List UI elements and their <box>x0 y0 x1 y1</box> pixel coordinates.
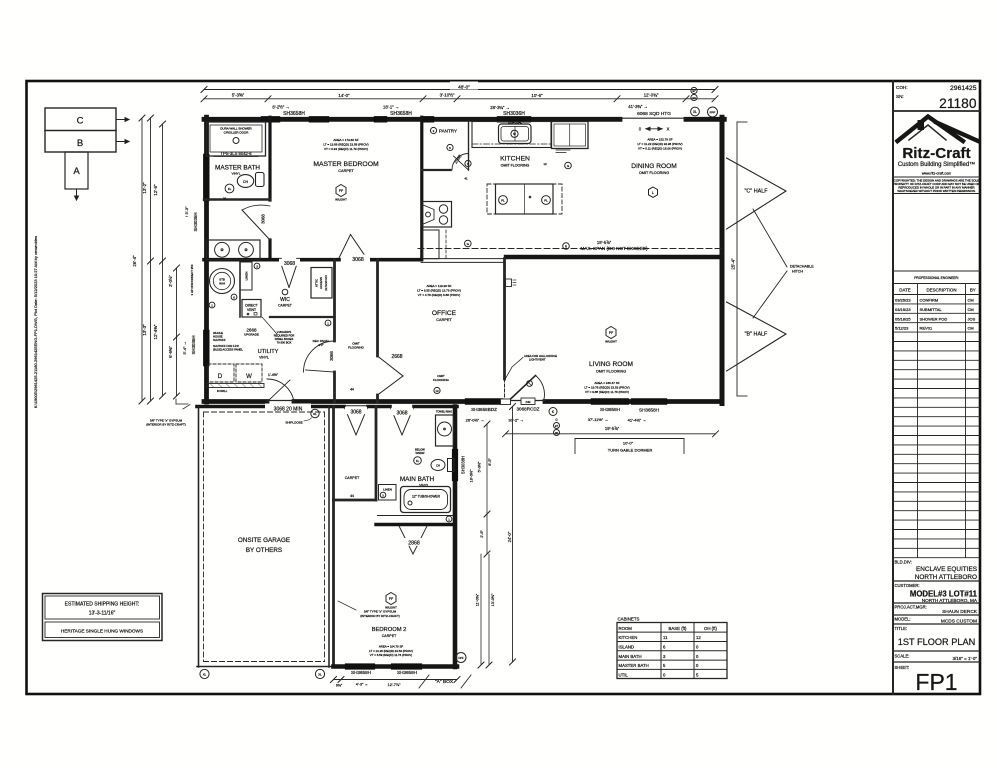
svg-text:1ST FLOOR PLAN: 1ST FLOOR PLAN <box>898 637 975 647</box>
svg-text:HOUSE: HOUSE <box>213 335 223 339</box>
svg-text:DM: DM <box>526 400 531 404</box>
svg-text:W/LIGHT: W/LIGHT <box>335 198 347 202</box>
svg-text:W/LIGHT: W/LIGHT <box>605 340 617 344</box>
svg-text:CARPET: CARPET <box>436 318 452 322</box>
svg-text:SH3658BDZ: SH3658BDZ <box>471 407 497 412</box>
svg-text:10'-6": 10'-6" <box>531 93 543 98</box>
svg-text:41'-4½" →: 41'-4½" → <box>628 418 647 423</box>
svg-text:PF: PF <box>339 189 343 193</box>
svg-text:37'-11½" →: 37'-11½" → <box>588 417 609 422</box>
svg-text:CONFIRM: CONFIRM <box>920 298 939 303</box>
svg-text:MODEL:: MODEL: <box>895 616 911 621</box>
svg-text:SUBMITTAL: SUBMITTAL <box>920 307 943 312</box>
svg-text:Custom Building Simplified™: Custom Building Simplified™ <box>898 161 975 168</box>
svg-text:L: L <box>652 191 654 195</box>
svg-text:SHAUN DERCK: SHAUN DERCK <box>942 609 978 615</box>
svg-text:41'-3¾" →: 41'-3¾" → <box>628 104 648 109</box>
svg-text:COH:: COH: <box>896 85 907 90</box>
svg-text:(INTERIOR BY RITZ-CRAFT): (INTERIOR BY RITZ-CRAFT) <box>360 614 400 618</box>
svg-text:AREA = 152.79 SF: AREA = 152.79 SF <box>647 138 672 142</box>
svg-text:FPF: FPF <box>458 656 464 660</box>
svg-text:14'-0": 14'-0" <box>338 93 350 98</box>
svg-text:ENCLAVE EQUITIES: ENCLAVE EQUITIES <box>916 566 977 573</box>
svg-text:FL: FL <box>228 187 232 191</box>
svg-text:K:\19005\2961425-21180-2961425: K:\19005\2961425-21180-2961425ENG-FP1.DW… <box>33 236 38 408</box>
svg-text:PROJ.ACT.MGR:: PROJ.ACT.MGR: <box>895 605 927 610</box>
svg-text:C: C <box>77 116 84 127</box>
svg-text:WHATSOEVER WITHOUT PRIOR WRITT: WHATSOEVER WITHOUT PRIOR WRITTEN PERMISS… <box>897 189 975 193</box>
svg-text:SH3658H: SH3658H <box>397 670 417 675</box>
svg-text:SHEET:: SHEET: <box>895 665 910 670</box>
svg-text:SHUTOFF: SHUTOFF <box>213 338 226 342</box>
svg-text:VT = 6.94 (REQD) 11.79 (PROV): VT = 6.94 (REQD) 11.79 (PROV) <box>324 147 368 151</box>
svg-text:PF: PF <box>609 331 613 335</box>
svg-text:VT = 4.78 (REQD) 6.88 (PROV): VT = 4.78 (REQD) 6.88 (PROV) <box>418 293 461 297</box>
svg-text:A: A <box>73 166 80 177</box>
svg-text:CARPET: CARPET <box>382 634 397 638</box>
svg-text:D: D <box>218 374 223 380</box>
svg-text:SH3658H: SH3658H <box>600 407 620 412</box>
svg-text:ONSITE GARAGE: ONSITE GARAGE <box>238 537 290 544</box>
svg-text:PROFESSIONAL ENGINEER:: PROFESSIONAL ENGINEER: <box>914 276 959 280</box>
svg-text:KITCHEN: KITCHEN <box>500 156 530 163</box>
svg-text:03/16/23: 03/16/23 <box>895 307 911 312</box>
svg-text:LINEN: LINEN <box>245 272 249 281</box>
svg-text:MAIN BATH: MAIN BATH <box>619 654 642 659</box>
svg-text:XL: XL <box>318 673 322 677</box>
svg-text:SN:: SN: <box>896 94 904 99</box>
svg-text:FP1: FP1 <box>915 669 957 695</box>
svg-text:12" TUB/SHOWER: 12" TUB/SHOWER <box>412 495 441 499</box>
svg-text:44: 44 <box>350 388 354 392</box>
svg-text:SH3035H: SH3035H <box>193 212 198 231</box>
svg-text:BASE (ft): BASE (ft) <box>669 626 687 631</box>
svg-text:MODEL#3 LOT#11: MODEL#3 LOT#11 <box>910 590 978 599</box>
svg-text:PANEL BOXES: PANEL BOXES <box>275 337 294 341</box>
svg-text:2668: 2668 <box>391 354 402 360</box>
svg-text:LIVING ROOM: LIVING ROOM <box>589 361 633 368</box>
svg-text:3068: 3068 <box>350 409 361 415</box>
svg-text:11'-0⅜": 11'-0⅜" <box>476 593 480 606</box>
svg-text:CUSTOMER:: CUSTOMER: <box>895 583 920 588</box>
svg-text:12'-0¾": 12'-0¾" <box>644 93 659 98</box>
svg-text:0: 0 <box>556 418 558 422</box>
svg-text:6068 SQD HTG: 6068 SQD HTG <box>637 111 671 117</box>
svg-text:12'-5": 12'-5" <box>153 184 158 196</box>
svg-text:(INTERIOR BY RITZ-CRAFT): (INTERIOR BY RITZ-CRAFT) <box>146 423 186 427</box>
svg-text:MASTER BATH: MASTER BATH <box>215 165 260 172</box>
svg-text:SHOWER POD: SHOWER POD <box>920 316 948 321</box>
svg-text:VINYL: VINYL <box>259 356 269 360</box>
svg-text:24'-0": 24'-0" <box>507 531 512 542</box>
svg-text:4'-3" →: 4'-3" → <box>356 683 369 687</box>
svg-text:SH3658H: SH3658H <box>390 111 412 117</box>
svg-text:SH3658H: SH3658H <box>639 408 659 413</box>
svg-text:SH3658H: SH3658H <box>351 670 371 675</box>
svg-text:WNDW: WNDW <box>416 451 425 455</box>
svg-text:70-300 BOX: 70-300 BOX <box>277 341 292 345</box>
svg-text:05/18/25: 05/18/25 <box>895 316 911 321</box>
svg-text:19'-5⅞": 19'-5⅞" <box>605 426 620 431</box>
svg-text:3'-10½": 3'-10½" <box>440 93 455 98</box>
svg-text:FLOORING: FLOORING <box>433 378 449 382</box>
svg-text:LIGHT/VENT: LIGHT/VENT <box>529 358 546 362</box>
svg-text:FL: FL <box>416 459 420 463</box>
svg-text:TITLE:: TITLE: <box>895 626 908 631</box>
svg-text:2961425: 2961425 <box>950 85 977 92</box>
svg-text:18'-0½": 18'-0½" <box>470 469 474 482</box>
svg-text:HITCH: HITCH <box>792 270 803 274</box>
svg-text:PF: PF <box>389 597 393 601</box>
svg-text:30'-2" →: 30'-2" → <box>508 418 523 423</box>
svg-text:"C" HALF: "C" HALF <box>745 189 769 195</box>
svg-text:SH3658H: SH3658H <box>283 111 305 117</box>
svg-text:OMIT FLOORING: OMIT FLOORING <box>596 370 626 374</box>
svg-text:BLD.DIV:: BLD.DIV: <box>895 560 912 565</box>
svg-text:3068: 3068 <box>396 410 407 416</box>
svg-text:25'-4": 25'-4" <box>731 258 736 270</box>
svg-text:DISPOSAL: DISPOSAL <box>508 120 522 124</box>
svg-text:ACCESS: ACCESS <box>319 277 323 289</box>
svg-text:8'-2½" →: 8'-2½" → <box>272 105 289 110</box>
svg-text:TOWEL RING: TOWEL RING <box>436 410 452 414</box>
svg-text:RL: RL <box>313 412 317 416</box>
svg-text:OMIT FLOORING: OMIT FLOORING <box>501 164 530 168</box>
svg-text:XL: XL <box>693 110 697 114</box>
svg-text:5/12/23: 5/12/23 <box>895 326 909 331</box>
svg-text:MCDS CUSTOM: MCDS CUSTOM <box>941 619 977 625</box>
svg-text:ROOM: ROOM <box>619 626 633 631</box>
svg-text:26'-4": 26'-4" <box>132 255 137 267</box>
svg-text:AREA = 119.39 SF: AREA = 119.39 SF <box>426 284 451 288</box>
svg-text:28'-3¼" →: 28'-3¼" → <box>490 105 510 110</box>
svg-text:18'-1" →: 18'-1" → <box>383 105 399 110</box>
svg-text:FPF: FPF <box>710 111 716 115</box>
svg-text:V-BOARD'S: V-BOARD'S <box>277 330 292 334</box>
svg-text:www.ritz-craft.com: www.ritz-craft.com <box>922 172 951 176</box>
svg-text:MASTER BEDROOM: MASTER BEDROOM <box>313 161 379 168</box>
svg-text:03/26/23: 03/26/23 <box>895 298 911 303</box>
svg-text:SH3038H: SH3038H <box>461 456 466 474</box>
svg-text:12: 12 <box>696 635 701 640</box>
svg-text:AREA = 173.60 SF: AREA = 173.60 SF <box>333 138 358 142</box>
svg-text:OH (ft): OH (ft) <box>704 626 717 631</box>
svg-text:"A" BOX: "A" BOX <box>435 679 454 685</box>
svg-text:VT = 5.11 (REQD) 16.06 (PROV): VT = 5.11 (REQD) 16.06 (PROV) <box>638 147 682 151</box>
svg-text:UTILITY: UTILITY <box>258 349 279 355</box>
svg-text:CM: CM <box>968 307 974 312</box>
svg-text:SHUTOFF FOR F.P.P.: SHUTOFF FOR F.P.P. <box>213 344 240 348</box>
svg-text:CARPET: CARPET <box>278 304 292 308</box>
svg-text:BY: BY <box>970 288 976 293</box>
svg-text:IN WALL: IN WALL <box>217 389 228 393</box>
svg-text:5'-0½": 5'-0½" <box>478 461 482 472</box>
svg-text:13'-2": 13'-2" <box>142 182 147 194</box>
svg-text:DESCRIPTION: DESCRIPTION <box>926 288 956 293</box>
svg-text:1'-4½": 1'-4½" <box>268 373 279 377</box>
svg-text:6'-6⅜": 6'-6⅜" <box>168 346 173 358</box>
svg-text:97: 97 <box>692 89 696 93</box>
svg-text:TPS-3LS 6042-6: TPS-3LS 6042-6 <box>220 151 252 156</box>
svg-text:LT = 11.22 (REQD) 32.96 (PROV): LT = 11.22 (REQD) 32.96 (PROV) <box>637 142 682 146</box>
svg-text:VT = 6.59 (REQD) 11.76 (PROV): VT = 6.59 (REQD) 11.76 (PROV) <box>370 653 412 657</box>
svg-text:CARPET: CARPET <box>345 476 360 480</box>
svg-text:UPGRADE: UPGRADE <box>244 333 259 337</box>
svg-text:ATTIC: ATTIC <box>315 279 319 287</box>
svg-text:BEDROOM 2: BEDROOM 2 <box>372 627 407 633</box>
svg-text:NORTH ATTLEBORO: NORTH ATTLEBORO <box>915 574 977 581</box>
svg-text:X: X <box>667 127 670 132</box>
svg-text:CABINETS: CABINETS <box>618 617 640 622</box>
svg-text:VT = 9.88 (REQD) 11.76 (PROV): VT = 9.88 (REQD) 11.76 (PROV) <box>585 390 629 394</box>
svg-text:MASTER BATH: MASTER BATH <box>619 663 649 668</box>
svg-text:12: 12 <box>435 389 439 393</box>
svg-text:FLOORING: FLOORING <box>348 346 364 350</box>
svg-text:3'-0½": 3'-0½" <box>168 275 173 287</box>
svg-text:XL: XL <box>203 673 207 677</box>
svg-text:CARPET: CARPET <box>338 169 354 173</box>
svg-text:44: 44 <box>350 494 354 498</box>
svg-text:SCALE:: SCALE: <box>895 654 910 659</box>
svg-text:HERITAGE SINGLE HUNG WINDOWS: HERITAGE SINGLE HUNG WINDOWS <box>61 629 143 634</box>
svg-text:3 HP DISCONNECT 950: 3 HP DISCONNECT 950 <box>190 264 194 295</box>
svg-text:12'-7⅞": 12'-7⅞" <box>388 683 401 687</box>
svg-text:JOS: JOS <box>968 316 976 321</box>
svg-text:PL: PL <box>501 199 505 203</box>
svg-text:CM: CM <box>968 298 974 303</box>
svg-text:48'-0": 48'-0" <box>458 85 470 90</box>
svg-text:MAIN BATH: MAIN BATH <box>400 476 435 483</box>
svg-text:REV01: REV01 <box>920 326 933 331</box>
svg-text:LT = 13.88 (REQD) 23.58 (PROV): LT = 13.88 (REQD) 23.58 (PROV) <box>323 143 368 147</box>
svg-text:WHOLE: WHOLE <box>213 331 223 335</box>
svg-text:W/H: W/H <box>219 282 225 286</box>
svg-text:2'-6": 2'-6" <box>480 530 484 538</box>
svg-text:Ritz-Craft: Ritz-Craft <box>902 145 970 162</box>
svg-text:B: B <box>77 138 83 149</box>
svg-text:12: 12 <box>543 162 547 166</box>
svg-text:6⅜": 6⅜" <box>336 684 343 688</box>
svg-text:41: 41 <box>464 177 468 181</box>
svg-text:MAX. SPAN (DO NOT EXCEED): MAX. SPAN (DO NOT EXCEED) <box>581 246 648 251</box>
svg-text:AREA = 346.47 SF: AREA = 346.47 SF <box>594 381 619 385</box>
svg-text:10'-0": 10'-0" <box>623 441 634 446</box>
svg-text:UTIL: UTIL <box>619 672 629 677</box>
svg-text:CM: CM <box>968 326 974 331</box>
svg-text:13'-3": 13'-3" <box>142 324 147 336</box>
svg-text:OFFICE: OFFICE <box>432 310 457 317</box>
svg-text:PANTRY: PANTRY <box>439 129 457 134</box>
svg-text:3068RCDZ: 3068RCDZ <box>517 407 540 412</box>
svg-text:DATE: DATE <box>899 288 910 293</box>
svg-text:26'-0½" →: 26'-0½" → <box>466 418 485 423</box>
svg-text:CH: CH <box>243 180 248 184</box>
svg-text:LT = 19.76 (REQD) 23.53 (PROV): LT = 19.76 (REQD) 23.53 (PROV) <box>584 386 629 390</box>
svg-text:TURN GABLE DORMER: TURN GABLE DORMER <box>608 448 653 453</box>
svg-text:3/16" = 1'-0": 3/16" = 1'-0" <box>953 656 978 661</box>
svg-text:3068: 3068 <box>329 351 334 361</box>
svg-text:C/ROLLER DOOR: C/ROLLER DOOR <box>224 131 250 135</box>
svg-text:DIRECT: DIRECT <box>245 304 258 308</box>
svg-text:DETACHABLE: DETACHABLE <box>790 265 814 269</box>
svg-text:VENT: VENT <box>247 308 256 312</box>
svg-text:13'-0⅜": 13'-0⅜" <box>491 593 495 606</box>
svg-text:3068: 3068 <box>284 261 295 267</box>
svg-text:12'-4⅜": 12'-4⅜" <box>153 324 158 339</box>
svg-text:W/LIGHT: W/LIGHT <box>385 606 397 610</box>
svg-text:97: 97 <box>555 424 559 428</box>
svg-text:CH: CH <box>436 464 440 468</box>
svg-text:SH3036H: SH3036H <box>191 335 196 354</box>
svg-text:(BLUE) ACCESS PANEL: (BLUE) ACCESS PANEL <box>213 348 243 352</box>
svg-text:DINING ROOM: DINING ROOM <box>631 163 676 170</box>
svg-text:SHIPLOOSE: SHIPLOOSE <box>285 421 302 425</box>
svg-text:21180: 21180 <box>939 96 977 111</box>
svg-text:90: 90 <box>555 431 559 435</box>
svg-text:OMIT FLOORING: OMIT FLOORING <box>639 171 669 175</box>
svg-text:13'-3-11/16": 13'-3-11/16" <box>89 611 116 617</box>
svg-text:30: 30 <box>223 197 227 201</box>
svg-text:8'-5": 8'-5" <box>488 458 492 466</box>
svg-text:2868: 2868 <box>408 541 420 547</box>
svg-text:3068: 3068 <box>261 214 266 224</box>
svg-text:ISLAND: ISLAND <box>619 645 635 650</box>
svg-text:ESTIMATED SHIPPING HEIGHT:: ESTIMATED SHIPPING HEIGHT: <box>65 602 140 608</box>
svg-text:22.5x30 RO: 22.5x30 RO <box>324 275 328 291</box>
svg-text:W: W <box>246 374 252 380</box>
svg-text:19'-5⅞": 19'-5⅞" <box>597 240 612 245</box>
svg-text:KITCHEN: KITCHEN <box>619 635 638 640</box>
svg-text:VINYL: VINYL <box>232 172 241 176</box>
svg-text:5'-4" →: 5'-4" → <box>182 341 187 354</box>
svg-text:BY OTHERS: BY OTHERS <box>246 547 282 554</box>
svg-text:LT = 9.55 (REQD) 13.76 (PROV): LT = 9.55 (REQD) 13.76 (PROV) <box>417 289 461 293</box>
svg-text:WIC: WIC <box>280 297 290 303</box>
svg-text:3068: 3068 <box>352 257 364 263</box>
svg-text:↑ 5'-3": ↑ 5'-3" <box>184 206 189 218</box>
svg-text:NORTH ATTLEBORO, MA: NORTH ATTLEBORO, MA <box>922 598 978 603</box>
svg-text:PL: PL <box>544 199 548 203</box>
svg-text:5'-3⅝": 5'-3⅝" <box>232 93 245 98</box>
svg-text:90: 90 <box>692 96 696 100</box>
svg-text:"B" HALF: "B" HALF <box>745 332 768 338</box>
svg-text:LINEN: LINEN <box>383 488 392 492</box>
svg-text:11: 11 <box>663 635 668 640</box>
